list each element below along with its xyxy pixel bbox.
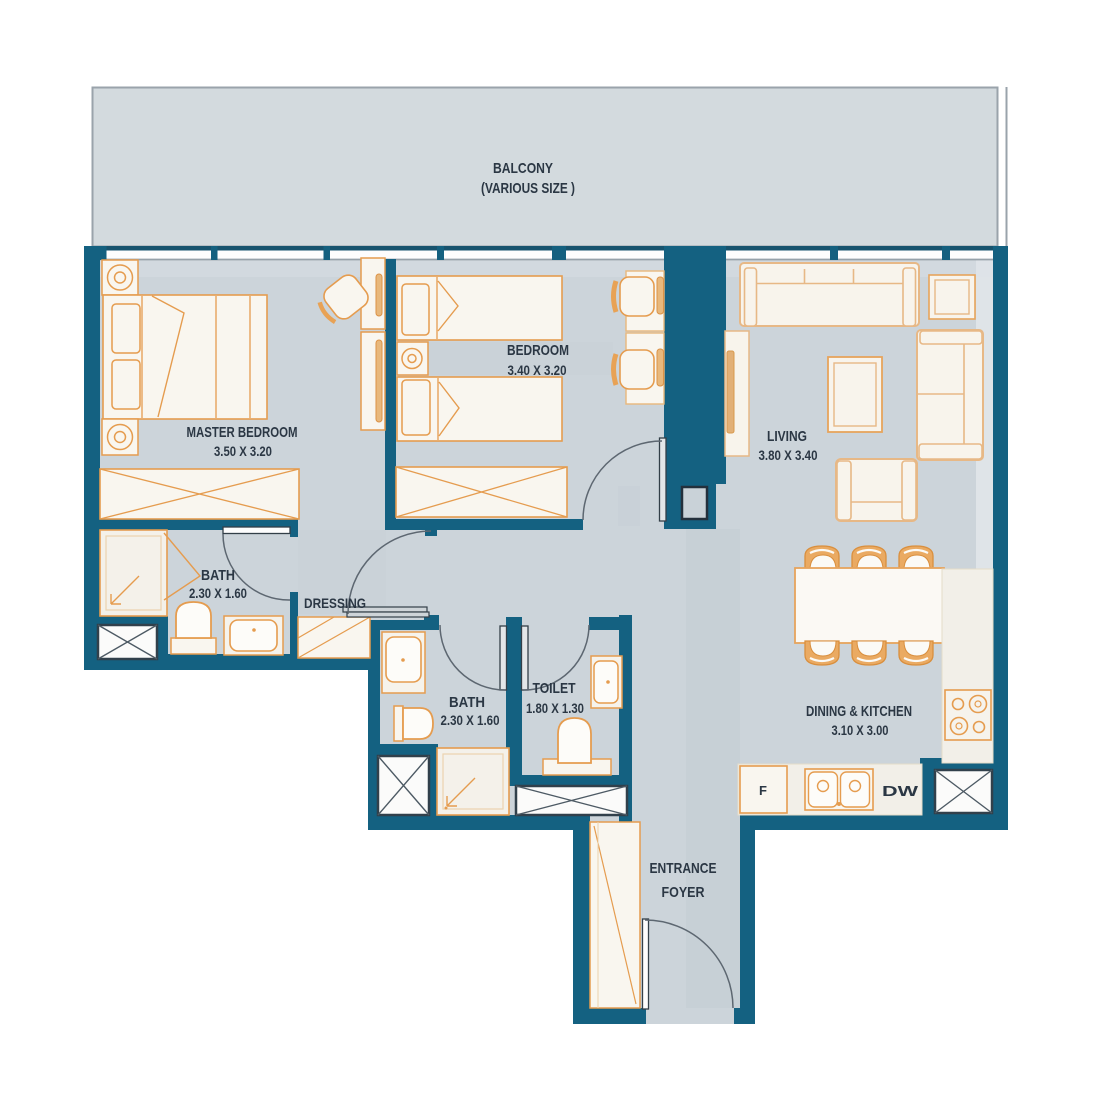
svg-text:2.30 X 1.60: 2.30 X 1.60	[441, 712, 500, 728]
svg-text:ENTRANCE: ENTRANCE	[650, 860, 717, 877]
svg-text:BALCONY: BALCONY	[493, 160, 553, 177]
svg-text:BEDROOM: BEDROOM	[507, 342, 569, 359]
svg-text:TOILET: TOILET	[533, 680, 576, 697]
svg-text:FOYER: FOYER	[662, 884, 705, 901]
svg-text:BATH: BATH	[201, 567, 235, 584]
svg-text:DINING & KITCHEN: DINING & KITCHEN	[806, 703, 912, 720]
svg-text:3.10 X 3.00: 3.10 X 3.00	[832, 722, 889, 738]
svg-text:BATH: BATH	[449, 694, 485, 711]
svg-text:2.30 X 1.60: 2.30 X 1.60	[189, 585, 247, 601]
svg-text:3.80 X 3.40: 3.80 X 3.40	[759, 447, 818, 463]
svg-text:1.80 X 1.30: 1.80 X 1.30	[526, 700, 584, 716]
svg-text:DRESSING: DRESSING	[304, 595, 366, 611]
svg-text:DW: DW	[882, 783, 919, 800]
svg-text:3.40 X 3.20: 3.40 X 3.20	[508, 362, 567, 378]
svg-text:F: F	[759, 783, 767, 798]
svg-text:MASTER BEDROOM: MASTER BEDROOM	[187, 424, 298, 441]
svg-text:(VARIOUS SIZE ): (VARIOUS SIZE )	[481, 180, 575, 197]
svg-text:LIVING: LIVING	[767, 428, 807, 445]
svg-text:3.50 X 3.20: 3.50 X 3.20	[214, 443, 272, 459]
